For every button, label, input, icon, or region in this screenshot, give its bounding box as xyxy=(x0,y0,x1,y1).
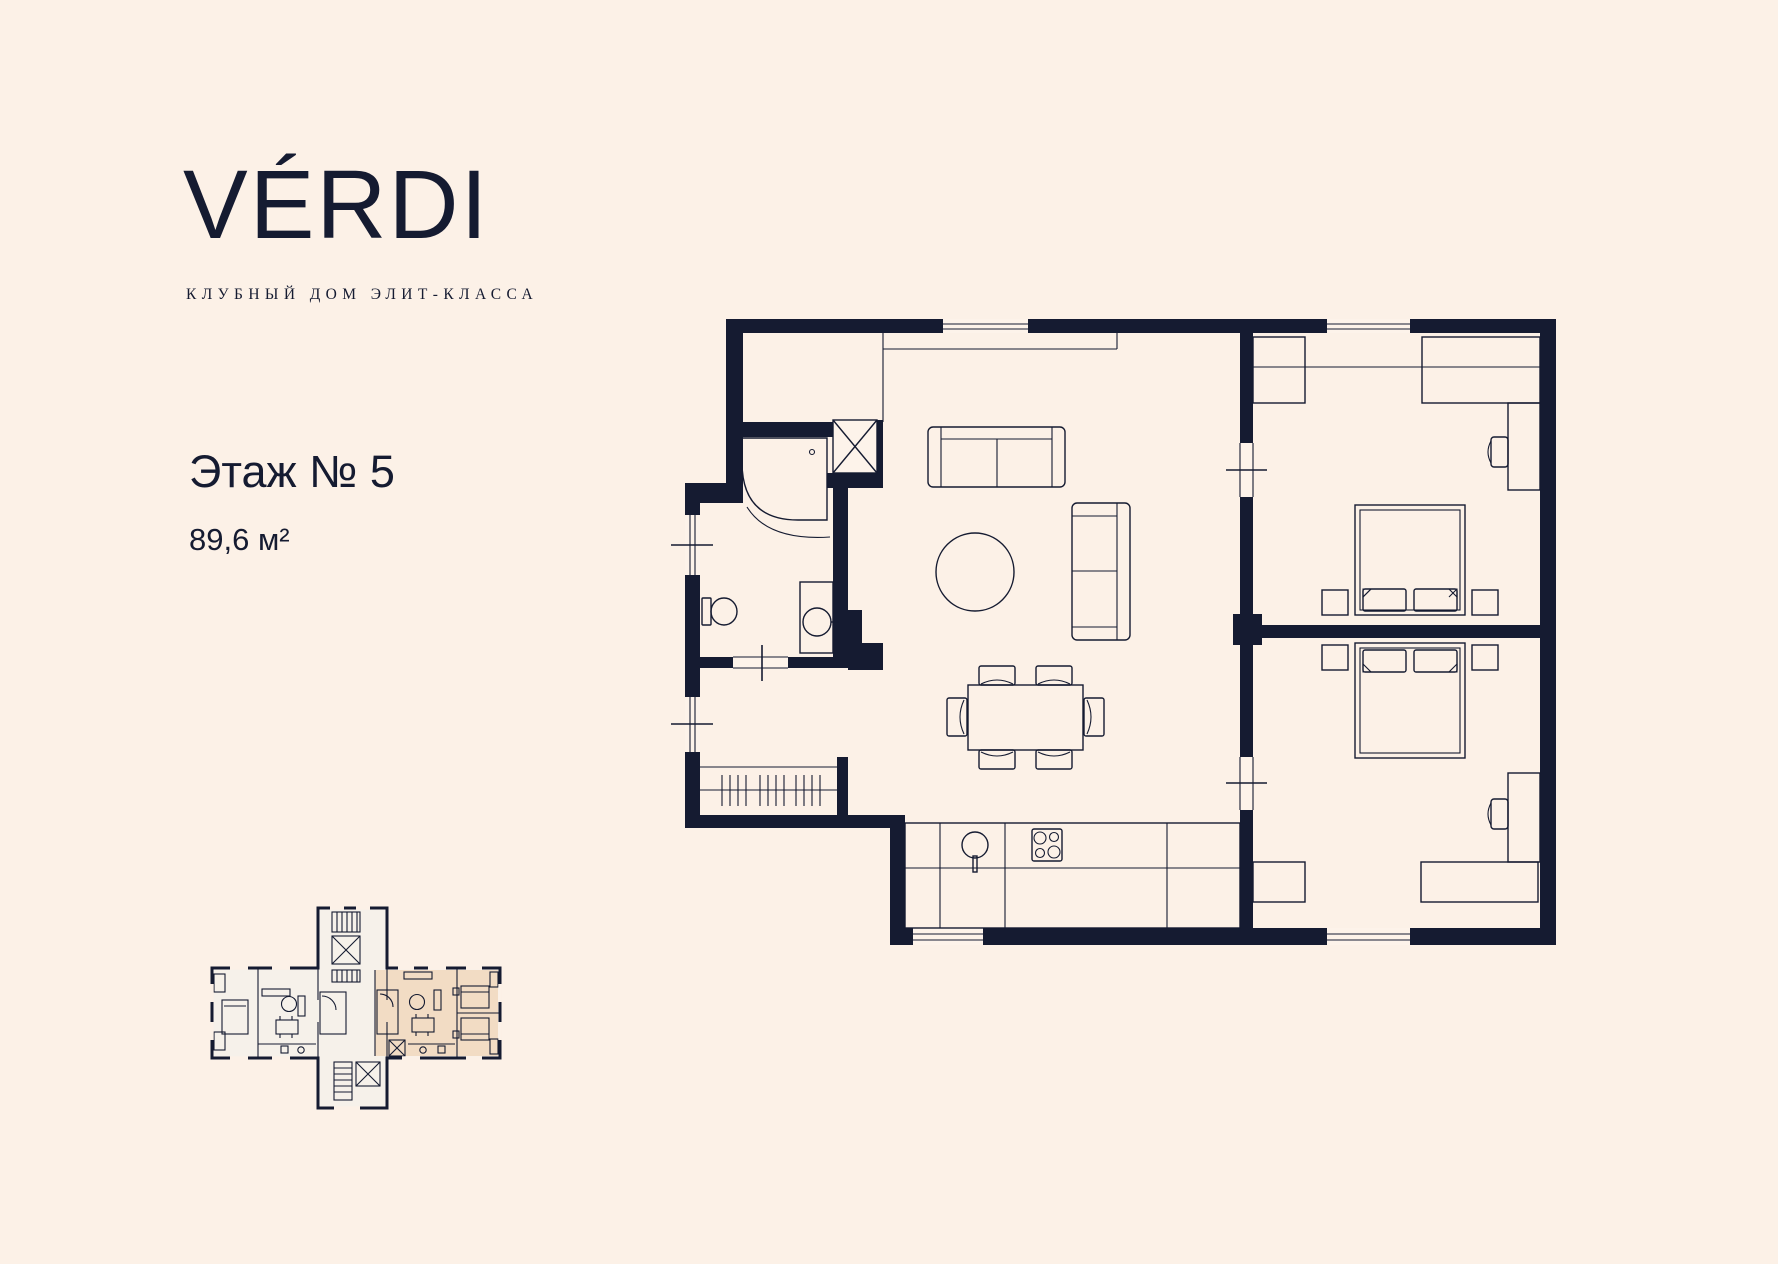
mini-plan xyxy=(212,908,500,1108)
wardrobe xyxy=(1421,862,1538,902)
window xyxy=(671,697,713,752)
bed xyxy=(1355,505,1465,615)
door xyxy=(733,645,788,681)
nightstand xyxy=(1322,645,1348,670)
desk xyxy=(1488,773,1540,862)
window xyxy=(671,515,713,575)
wardrobe xyxy=(1253,337,1540,403)
window xyxy=(913,928,983,945)
nightstand xyxy=(1322,590,1348,615)
door xyxy=(1226,757,1267,810)
nightstand xyxy=(1472,645,1498,670)
sink xyxy=(962,832,988,872)
poster: VÉRDI КЛУБНЫЙ ДОМ ЭЛИТ-КЛАССА Этаж № 5 8… xyxy=(0,0,1778,1264)
floor-plan-graphic xyxy=(0,0,1778,1264)
partition-lines xyxy=(883,333,1117,422)
main-floor-plan xyxy=(671,319,1556,945)
desk xyxy=(1488,403,1540,490)
shaft-x-box xyxy=(833,420,877,473)
window xyxy=(943,319,1028,333)
wardrobe xyxy=(1253,862,1305,902)
hall-wardrobe xyxy=(700,767,837,806)
cooktop xyxy=(1032,829,1062,861)
door xyxy=(1226,443,1267,497)
window xyxy=(1327,928,1410,945)
shower xyxy=(742,438,830,537)
dining-table xyxy=(947,666,1104,769)
washbasin xyxy=(800,582,839,653)
sofa xyxy=(1072,503,1130,640)
interior-walls xyxy=(700,333,1540,928)
coffee-table xyxy=(936,533,1014,611)
nightstand xyxy=(1472,590,1498,615)
window xyxy=(1327,319,1410,333)
toilet xyxy=(702,598,737,625)
kitchen-counter xyxy=(905,823,1240,928)
bed xyxy=(1355,643,1465,758)
sofa xyxy=(928,427,1065,487)
